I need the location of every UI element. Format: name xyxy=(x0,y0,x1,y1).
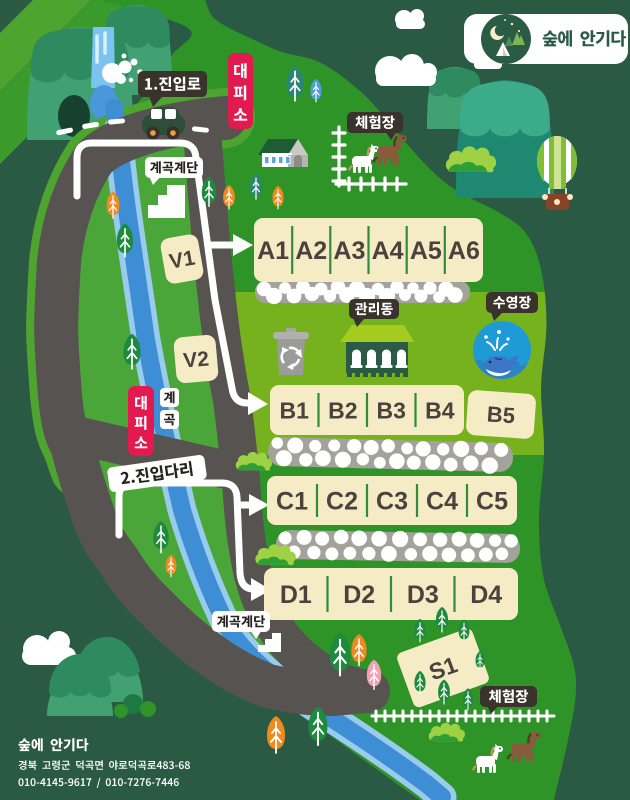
svg-text:V2: V2 xyxy=(182,348,210,373)
svg-text:D3: D3 xyxy=(407,581,439,609)
svg-text:C5: C5 xyxy=(476,488,508,516)
svg-text:A3: A3 xyxy=(333,237,365,265)
svg-text:B5: B5 xyxy=(486,401,516,428)
svg-text:A5: A5 xyxy=(410,237,442,265)
svg-text:C3: C3 xyxy=(376,488,408,516)
svg-text:D2: D2 xyxy=(343,581,375,609)
svg-text:D4: D4 xyxy=(470,581,502,609)
svg-text:V1: V1 xyxy=(168,246,198,273)
svg-text:B4: B4 xyxy=(425,397,455,423)
svg-text:B2: B2 xyxy=(328,397,357,423)
svg-text:C2: C2 xyxy=(326,488,358,516)
svg-text:C1: C1 xyxy=(276,488,308,516)
svg-text:C4: C4 xyxy=(426,488,458,516)
svg-text:A1: A1 xyxy=(257,237,289,265)
svg-text:D1: D1 xyxy=(280,581,312,609)
svg-text:A4: A4 xyxy=(372,237,404,265)
svg-text:B3: B3 xyxy=(376,397,405,423)
svg-text:A6: A6 xyxy=(448,237,480,265)
svg-text:A2: A2 xyxy=(295,237,327,265)
svg-text:B1: B1 xyxy=(279,397,309,423)
